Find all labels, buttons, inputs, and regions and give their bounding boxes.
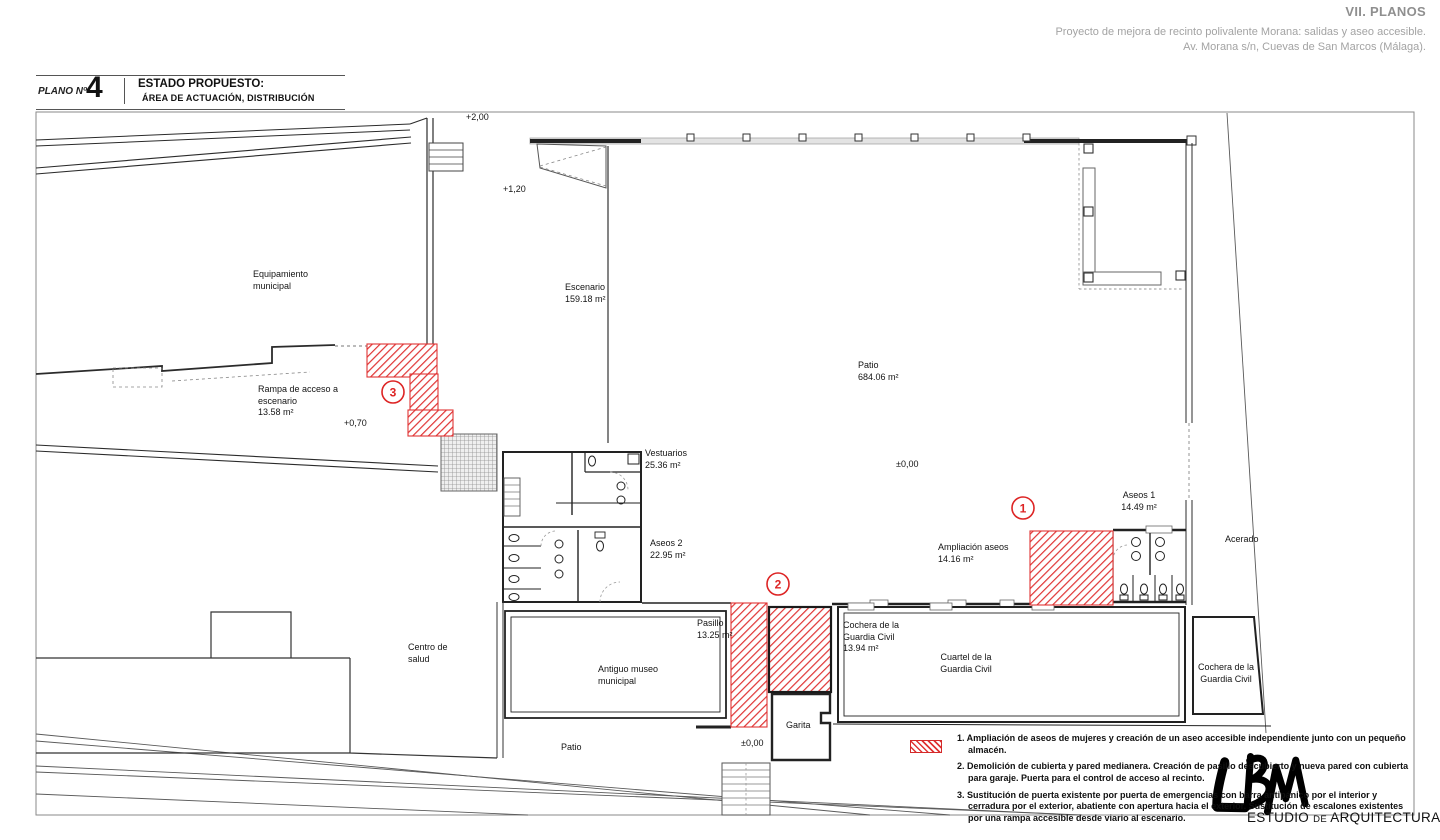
- label-centro-salud: Centro de salud: [408, 642, 448, 665]
- label-garita: Garita: [786, 720, 811, 732]
- marker-3-number: 3: [390, 386, 397, 400]
- label-vestuarios: Vestuarios 25.36 m²: [645, 448, 687, 471]
- studio-word-estudio: ESTUDIO: [1247, 810, 1309, 825]
- label-aseos1: Aseos 1 14.49 m²: [1108, 490, 1170, 513]
- level-plus120: +1,20: [503, 184, 526, 196]
- label-aseos2: Aseos 2 22.95 m²: [650, 538, 686, 561]
- label-ampliacion-aseos: Ampliación aseos 14.16 m²: [938, 542, 1009, 565]
- pergola-structure: [1079, 143, 1185, 289]
- centro-salud-outline: [36, 602, 503, 758]
- legend-item-2: 2. Demolición de cubierta y pared median…: [957, 761, 1419, 784]
- label-cuartel: Cuartel de la Guardia Civil: [918, 652, 1014, 675]
- zone-1-hatch: [1030, 531, 1113, 605]
- zone-2-garaje-hatch: [769, 607, 831, 692]
- legend-item-1: 1. Ampliación de aseos de mujeres y crea…: [957, 733, 1419, 756]
- existing-steps-hatch: [441, 434, 497, 491]
- patio-fence: [530, 134, 1196, 145]
- level-zero-patio: ±0,00: [896, 459, 918, 471]
- label-pasillo: Pasillo 13.25 m²: [697, 618, 733, 641]
- label-patio-inferior: Patio: [561, 742, 582, 754]
- studio-word-arquitectura: ARQUITECTURA: [1330, 810, 1440, 825]
- zone-2-pasillo-hatch: [731, 603, 767, 727]
- label-cochera-derecha: Cochera de la Guardia Civil: [1194, 662, 1258, 685]
- label-cochera-cuartel: Cochera de la Guardia Civil 13.94 m²: [843, 620, 899, 655]
- building-equipamiento: [36, 118, 438, 472]
- level-zero-inferior: ±0,00: [741, 738, 763, 750]
- aseos1-room: [1113, 526, 1186, 602]
- label-acerado: Acerado: [1225, 534, 1259, 546]
- vestuarios-aseos2-block: [503, 452, 641, 602]
- label-rampa: Rampa de acceso a escenario 13.58 m²: [258, 384, 338, 419]
- label-equipamiento: Equipamiento municipal: [253, 269, 308, 292]
- label-patio: Patio 684.06 m²: [858, 360, 899, 383]
- floor-plan-drawing: 1 2 3: [0, 0, 1440, 840]
- label-escenario: Escenario 159.18 m²: [565, 282, 606, 305]
- marker-2-number: 2: [775, 578, 782, 592]
- patio-east-wall: [1186, 143, 1192, 605]
- zone-3-hatch: [367, 344, 453, 436]
- plan-sheet: VII. PLANOS Proyecto de mejora de recint…: [0, 0, 1440, 840]
- studio-name: ESTUDIO DE ARQUITECTURA: [1247, 810, 1440, 825]
- marker-1-number: 1: [1020, 502, 1027, 516]
- level-plus070: +0,70: [344, 418, 367, 430]
- label-museo: Antiguo museo municipal: [598, 664, 658, 687]
- studio-word-de: DE: [1313, 814, 1327, 825]
- legend-hatch-swatch: [910, 740, 942, 753]
- level-plus200: +2,00: [466, 112, 489, 124]
